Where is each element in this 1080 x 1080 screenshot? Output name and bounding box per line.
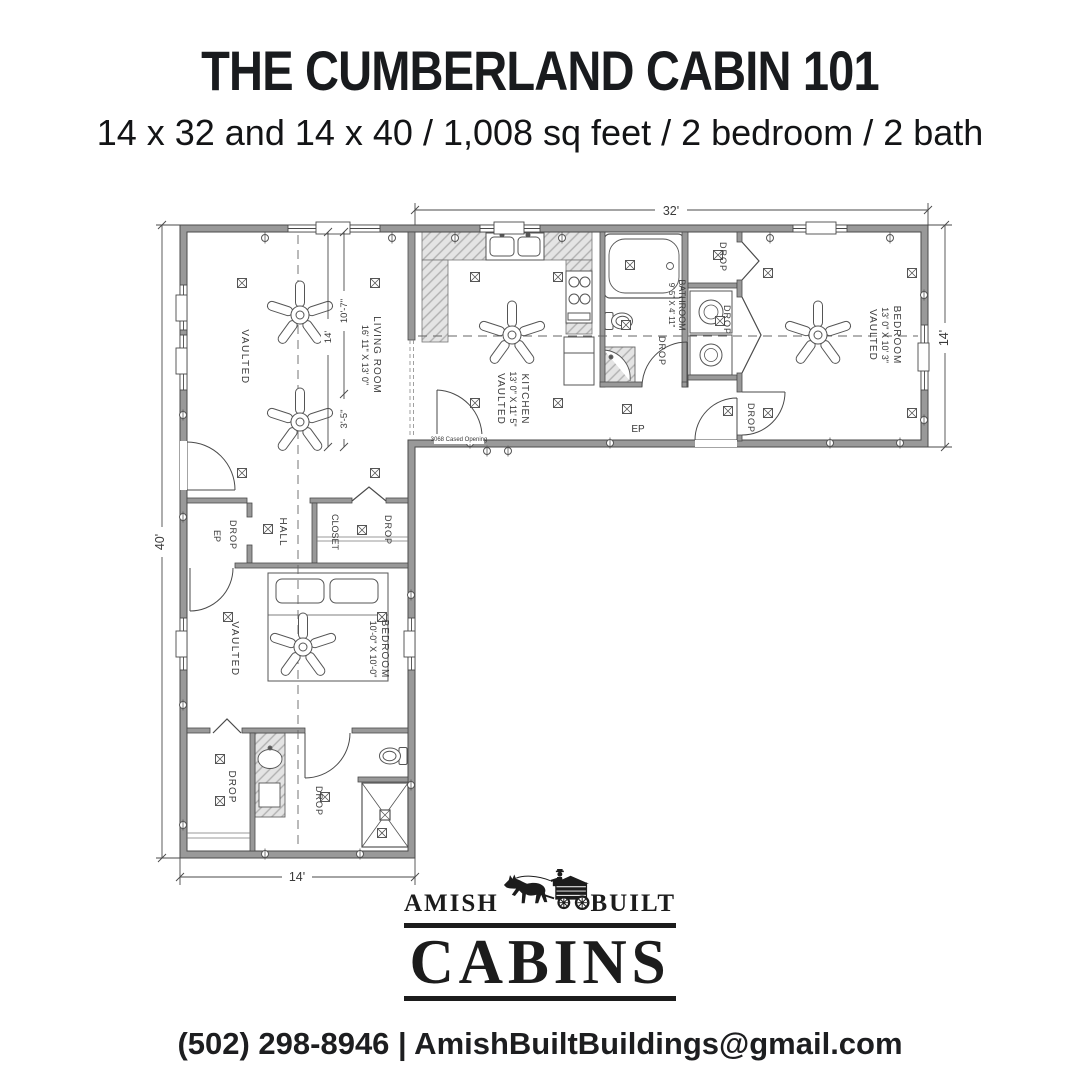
bathroom1-size: 9' 5" X 4' 11": [667, 283, 676, 328]
ceiling-fan-kitchen: [478, 301, 545, 365]
floor-plan: 32' 14' 40' 14' 10'-7" 3'-5" 14' 3068 Ca…: [130, 185, 980, 905]
bedroom2-note: VAULTED: [229, 621, 240, 676]
drop-label-bottom-closet: DROP: [226, 771, 237, 804]
living-room-note: VAULTED: [239, 329, 250, 384]
logo-word-cabins: CABINS: [409, 930, 670, 994]
bath2-vanity: [255, 733, 285, 817]
drop-label-left-closet: DROP: [228, 520, 238, 550]
dim-right: 14': [937, 330, 951, 346]
kitchen-note: VAULTED: [495, 373, 506, 425]
bedroom2-name: BEDROOM: [379, 620, 390, 679]
page-title: THE CUMBERLAND CABIN 101: [86, 38, 993, 103]
page-subtitle: 14 x 32 and 14 x 40 / 1,008 sq feet / 2 …: [0, 112, 1080, 154]
dim-top: 32': [663, 204, 679, 218]
bedroom1-size: 13' 0" X 10' 3": [880, 307, 890, 363]
bedroom1-note: VAULTED: [867, 309, 878, 361]
page: THE CUMBERLAND CABIN 101 14 x 32 and 14 …: [0, 0, 1080, 1080]
drop-label-bed1-entry: DROP: [746, 403, 756, 433]
company-logo: AMISH: [0, 848, 1080, 1001]
dim-left: 40': [153, 534, 167, 550]
ep-label-left-wing: EP: [212, 530, 222, 542]
ep-label-top-wing: EP: [631, 424, 645, 435]
stove: [566, 271, 592, 323]
bathroom1-name: BATHROOM: [677, 279, 687, 330]
dim-inner-total: 14': [323, 331, 334, 344]
ceiling-fan-living-2: [266, 388, 333, 452]
bedroom2-size: 10'-0" X 10'-0": [368, 621, 378, 678]
bedroom1-name: BEDROOM: [891, 306, 902, 365]
closet-label: CLOSET: [330, 514, 340, 551]
kitchen-sink: [486, 233, 544, 260]
cased-opening-jambs: [410, 340, 414, 435]
drop-label-bath2: DROP: [314, 786, 324, 816]
doors: [187, 342, 785, 778]
living-room-size: 16' 11" X 13' 0": [360, 325, 370, 385]
dim-inner-upper: 10'-7": [339, 299, 350, 323]
ceiling-fan-bedroom1: [784, 301, 851, 365]
drop-label-hall-closet: DROP: [383, 515, 393, 545]
horse-buggy-icon: [499, 852, 591, 924]
floor-plan-svg: 32' 14' 40' 14' 10'-7" 3'-5" 14' 3068 Ca…: [130, 185, 980, 905]
dim-inner-lower: 3'-5": [339, 410, 350, 429]
drop-label-wd: DROP: [722, 305, 732, 335]
drop-label-bath1: DROP: [657, 336, 667, 366]
cased-opening-label: 3068 Cased Opening: [431, 437, 488, 443]
logo-word-amish: AMISH: [404, 890, 499, 920]
drop-label-closet1: DROP: [718, 242, 728, 272]
bath1-vanity: [604, 347, 635, 385]
kitchen-size: 13' 0" X 11' 5": [508, 371, 518, 426]
kitchen-name: KITCHEN: [519, 374, 530, 425]
living-room-name: LIVING ROOM: [371, 316, 382, 394]
toilet-bath2: [380, 748, 408, 765]
logo-word-built: BUILT: [590, 890, 676, 920]
refrigerator: [564, 337, 594, 385]
hall-label: HALL: [277, 517, 288, 546]
contact-line: (502) 298-8946 | AmishBuiltBuildings@gma…: [0, 1026, 1080, 1062]
